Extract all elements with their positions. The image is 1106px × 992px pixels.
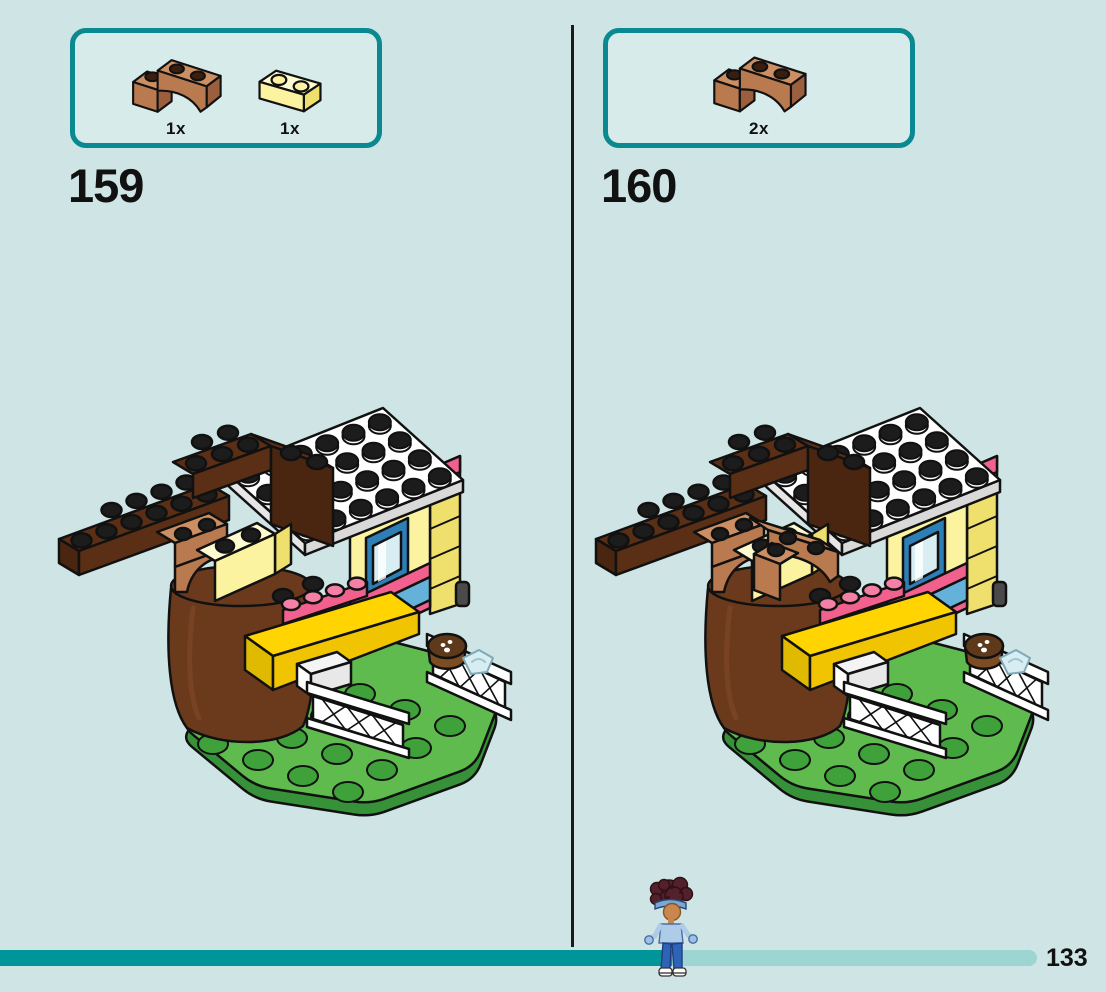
step-number-160: 160 [601,158,676,213]
brown-arch-brick-icon [126,54,226,117]
part-count: 1x [280,119,300,139]
parts-panel-step-159: 1x 1x [70,28,382,148]
mini-doll-figure [641,876,701,981]
part-cell-yellow-brick: 1x [254,33,326,143]
part-cell-arch: 2x [707,33,811,143]
page-number: 133 [1046,944,1088,973]
brown-arch-brick-icon [707,51,811,117]
step-number-159: 159 [68,158,143,213]
part-count: 2x [749,119,769,139]
part-count: 1x [166,119,186,139]
part-cell-arch: 1x [126,33,226,143]
model-illustration-159 [55,396,520,821]
progress-bar-track [672,950,1037,966]
parts-panel-step-160: 2x [603,28,915,148]
yellow-brick-icon [254,65,326,117]
column-divider [571,25,574,947]
progress-bar-fill [0,950,672,966]
model-illustration-160 [592,396,1057,821]
